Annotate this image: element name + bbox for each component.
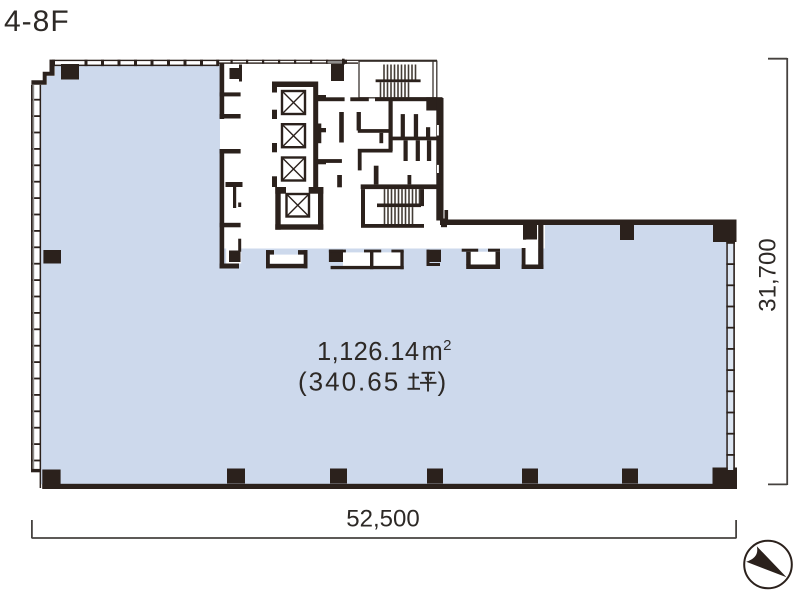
svg-text:52,500: 52,500: [346, 506, 419, 533]
svg-text:4-8F: 4-8F: [4, 5, 70, 38]
svg-text:(340.65: (340.65: [298, 367, 400, 397]
svg-text:31,700: 31,700: [755, 238, 782, 311]
svg-text:): ): [438, 367, 447, 397]
svg-text:1,126.14m2: 1,126.14m2: [317, 337, 452, 366]
